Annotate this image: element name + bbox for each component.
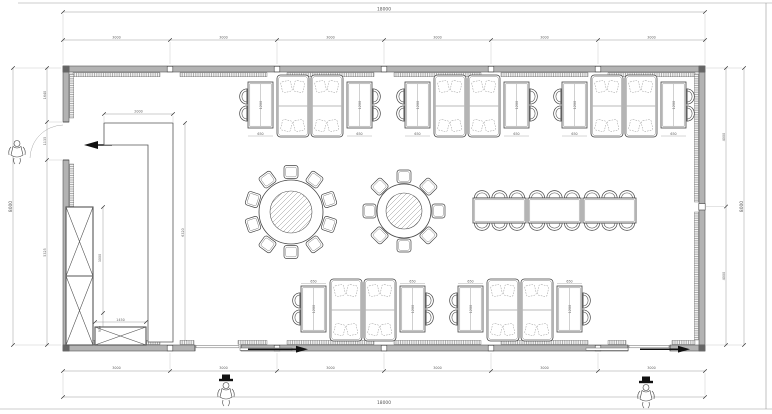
dim-partition-height: 6320 xyxy=(181,228,185,236)
booth-dining-group: 12006501200650 xyxy=(450,279,591,341)
table-length-dim: 1200 xyxy=(411,305,415,313)
booth-dining-group: 12006501200650 xyxy=(293,279,434,341)
dim-left-seg: 1135 xyxy=(43,137,47,145)
dim-right-overall: 8000 xyxy=(739,201,745,212)
booth-dining-group: 12006501200650 xyxy=(554,75,695,137)
table-length-dim: 1200 xyxy=(259,101,263,109)
dim-left-seg: 1640 xyxy=(43,91,47,99)
dim-left-seg: 5325 xyxy=(43,248,47,256)
dim-top-seg: 3000 xyxy=(433,35,441,39)
storage-cabinet-tall xyxy=(66,207,93,345)
dim-cabinet-upper: 3000 xyxy=(98,254,102,262)
dim-top-seg: 3000 xyxy=(647,35,655,39)
table-length-dim: 1200 xyxy=(312,305,316,313)
banquet-long-table xyxy=(473,191,636,231)
dim-overall-width-top: 18000 xyxy=(377,7,391,13)
table-width-dim: 650 xyxy=(356,132,362,136)
dim-top-seg: 3000 xyxy=(219,35,227,39)
booth-dining-group: 12006501200650 xyxy=(397,75,538,137)
floor-plan-page: 1200650120065012006501200650120065012006… xyxy=(0,0,772,414)
booth-dining-group: 12006501200650 xyxy=(240,75,381,137)
dim-left-overall: 8000 xyxy=(8,201,14,212)
dim-right-seg: 4000 xyxy=(722,272,726,280)
dim-top-seg: 3000 xyxy=(540,35,548,39)
dim-bottom-seg: 3000 xyxy=(326,366,334,370)
dim-bottom-seg: 3000 xyxy=(540,366,548,370)
table-length-dim: 1200 xyxy=(568,305,572,313)
person-icon xyxy=(638,377,655,409)
dim-bottom-seg: 3000 xyxy=(433,366,441,370)
dim-overall-width-bottom: 18000 xyxy=(377,400,391,406)
round-table-8-seats xyxy=(363,170,445,252)
storage-cabinet-low xyxy=(95,327,146,345)
table-width-dim: 650 xyxy=(414,132,420,136)
table-width-dim: 650 xyxy=(513,132,519,136)
dim-bottom-seg: 3000 xyxy=(647,366,655,370)
dim-bottom-seg: 3000 xyxy=(112,366,120,370)
table-width-dim: 650 xyxy=(467,279,473,283)
table-length-dim: 1200 xyxy=(573,101,577,109)
table-length-dim: 1200 xyxy=(358,101,362,109)
table-width-dim: 650 xyxy=(571,132,577,136)
dim-right-seg: 4000 xyxy=(722,133,726,141)
dim-cabinet-lower: 900 xyxy=(98,326,102,332)
table-width-dim: 650 xyxy=(566,279,572,283)
table-width-dim: 650 xyxy=(257,132,263,136)
person-icon xyxy=(218,375,235,407)
floor-plan-drawing: 1200650120065012006501200650120065012006… xyxy=(0,0,772,414)
dim-top-seg: 3000 xyxy=(112,35,120,39)
table-length-dim: 1200 xyxy=(416,101,420,109)
table-width-dim: 650 xyxy=(310,279,316,283)
dim-top-seg: 3000 xyxy=(326,35,334,39)
table-width-dim: 650 xyxy=(670,132,676,136)
furniture: 1200650120065012006501200650120065012006… xyxy=(240,75,695,341)
table-length-dim: 1200 xyxy=(515,101,519,109)
dim-cabinet-box-width: 1450 xyxy=(116,318,124,322)
table-length-dim: 1200 xyxy=(672,101,676,109)
round-table-10-seats xyxy=(245,166,338,259)
table-length-dim: 1200 xyxy=(469,305,473,313)
table-width-dim: 650 xyxy=(409,279,415,283)
entry-partition-wall xyxy=(104,123,173,342)
dim-bottom-seg: 3000 xyxy=(219,366,227,370)
dim-partition-width: 2000 xyxy=(134,110,142,114)
person-icon xyxy=(9,141,26,165)
